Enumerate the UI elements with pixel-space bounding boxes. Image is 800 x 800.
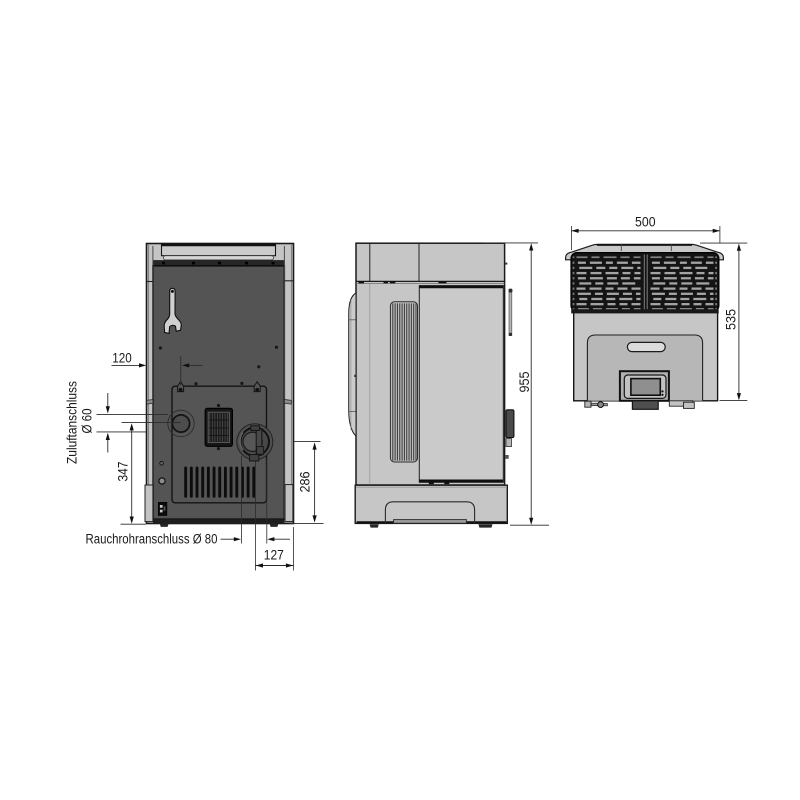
svg-text:286: 286	[297, 472, 312, 493]
svg-text:Zuluftanschluss: Zuluftanschluss	[65, 381, 80, 464]
svg-text:535: 535	[723, 309, 738, 330]
svg-text:Rauchrohranschluss Ø 80: Rauchrohranschluss Ø 80	[86, 532, 218, 547]
svg-text:127: 127	[264, 547, 284, 562]
svg-text:500: 500	[635, 215, 656, 230]
svg-text:955: 955	[517, 372, 532, 393]
svg-text:120: 120	[112, 350, 132, 365]
svg-text:Ø 60: Ø 60	[80, 409, 95, 434]
svg-text:347: 347	[116, 462, 131, 482]
